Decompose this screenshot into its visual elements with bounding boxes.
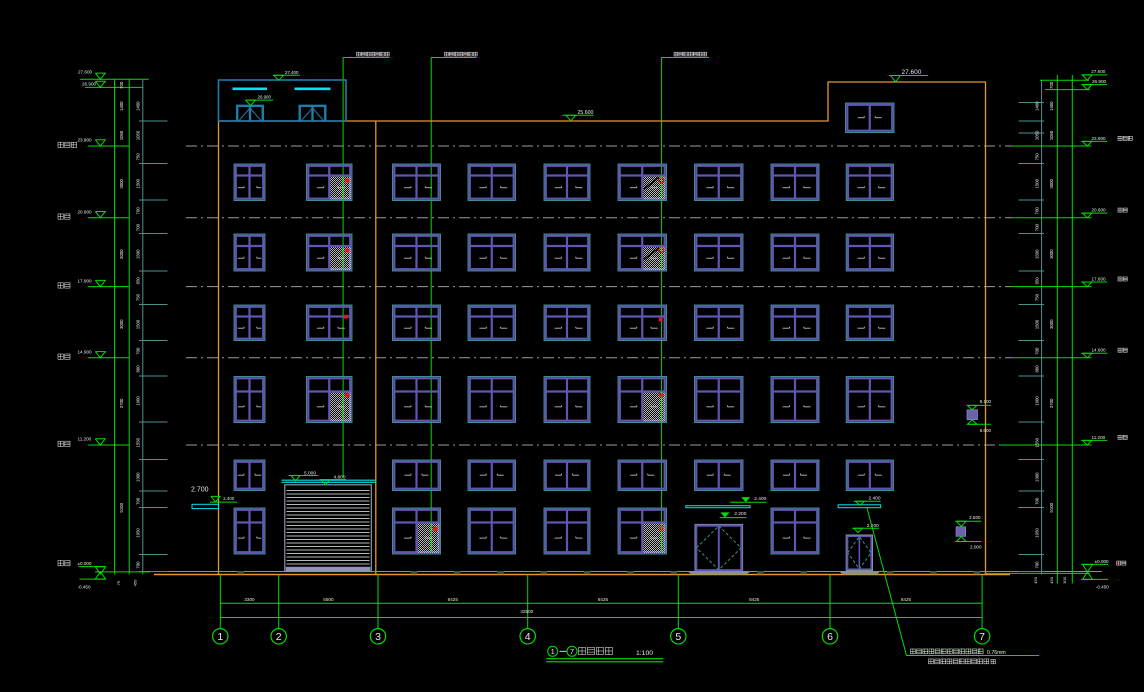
svg-text:1300: 1300 <box>1034 472 1039 482</box>
svg-text:3000: 3000 <box>119 319 124 329</box>
svg-text:1500: 1500 <box>135 249 140 259</box>
svg-text:8425: 8425 <box>901 597 912 602</box>
svg-text:1050: 1050 <box>135 130 140 140</box>
svg-text:700: 700 <box>135 497 140 505</box>
svg-text:2.400: 2.400 <box>869 496 881 502</box>
svg-text:42500: 42500 <box>520 609 533 614</box>
svg-text:5.000: 5.000 <box>304 471 316 477</box>
svg-text:2.400: 2.400 <box>754 496 766 502</box>
svg-text:2.400: 2.400 <box>223 496 235 501</box>
svg-text:4: 4 <box>525 631 531 643</box>
svg-text:1950: 1950 <box>1034 528 1039 538</box>
svg-text:2.000: 2.000 <box>970 545 982 550</box>
svg-text:1300: 1300 <box>135 472 140 482</box>
svg-text:17.900: 17.900 <box>78 278 92 283</box>
svg-text:3700: 3700 <box>119 398 124 408</box>
svg-text:3000: 3000 <box>1049 319 1054 329</box>
svg-text:2.200: 2.200 <box>867 523 879 529</box>
svg-text:75: 75 <box>116 580 121 585</box>
svg-text:23.600: 23.600 <box>1092 136 1106 141</box>
svg-text:3: 3 <box>375 631 381 643</box>
svg-text:700: 700 <box>135 561 140 569</box>
svg-text:17.600: 17.600 <box>1092 276 1106 281</box>
svg-text:26.900: 26.900 <box>82 82 96 87</box>
svg-text:3000: 3000 <box>1049 249 1054 259</box>
svg-text:11.200: 11.200 <box>1092 435 1106 440</box>
svg-text:6: 6 <box>827 631 833 643</box>
svg-text:14.900: 14.900 <box>78 350 92 355</box>
svg-text:1900: 1900 <box>1034 396 1039 406</box>
svg-text:1500: 1500 <box>1034 178 1039 188</box>
svg-text:8425: 8425 <box>749 597 760 602</box>
svg-text:1:100: 1:100 <box>636 650 653 657</box>
svg-text:8.600: 8.600 <box>980 428 992 433</box>
svg-text:1400: 1400 <box>135 101 140 111</box>
svg-text:4.800: 4.800 <box>334 474 346 480</box>
svg-text:5500: 5500 <box>323 597 334 602</box>
svg-text:2: 2 <box>276 631 282 643</box>
svg-text:700: 700 <box>1049 81 1054 89</box>
svg-text:8425: 8425 <box>448 597 459 602</box>
svg-text:700: 700 <box>1034 561 1039 569</box>
svg-text:23.900: 23.900 <box>78 138 92 143</box>
svg-text:3000: 3000 <box>119 249 124 259</box>
svg-text:3300: 3300 <box>244 597 255 602</box>
svg-text:1550: 1550 <box>135 437 140 447</box>
svg-text:1400: 1400 <box>1034 101 1039 111</box>
svg-text:700: 700 <box>135 347 140 355</box>
svg-text:7: 7 <box>570 647 574 656</box>
svg-text:750: 750 <box>135 293 140 301</box>
svg-text:20.600: 20.600 <box>1092 208 1106 213</box>
svg-text:700: 700 <box>1034 223 1039 231</box>
svg-text:800: 800 <box>135 365 140 373</box>
svg-text:650: 650 <box>135 277 140 285</box>
svg-text:1500: 1500 <box>135 319 140 329</box>
svg-text:27.600: 27.600 <box>902 69 922 76</box>
svg-text:1900: 1900 <box>135 396 140 406</box>
svg-text:700: 700 <box>1034 207 1039 215</box>
svg-text:0.76mm: 0.76mm <box>987 650 1006 656</box>
svg-text:9.100: 9.100 <box>980 399 992 404</box>
svg-text:-0.450: -0.450 <box>78 584 91 589</box>
svg-text:5100: 5100 <box>119 502 124 512</box>
svg-text:800: 800 <box>1034 365 1039 373</box>
svg-text:700: 700 <box>1034 347 1039 355</box>
svg-text:1400: 1400 <box>119 101 124 111</box>
svg-text:27.600: 27.600 <box>1091 69 1105 74</box>
svg-text:450: 450 <box>133 579 138 586</box>
svg-text:27.600: 27.600 <box>78 70 92 75</box>
svg-text:1050: 1050 <box>119 130 124 140</box>
svg-text:-0.450: -0.450 <box>1096 584 1109 589</box>
svg-text:700: 700 <box>135 207 140 215</box>
svg-text:25.600: 25.600 <box>578 110 594 116</box>
svg-text:1: 1 <box>551 647 555 656</box>
svg-text:26.900: 26.900 <box>1092 79 1106 84</box>
svg-text:11.200: 11.200 <box>78 437 92 442</box>
svg-text:±0.000: ±0.000 <box>78 561 92 566</box>
svg-text:450: 450 <box>1033 576 1038 583</box>
svg-text:750: 750 <box>1034 293 1039 301</box>
svg-text:5100: 5100 <box>1049 502 1054 512</box>
svg-text:3000: 3000 <box>119 178 124 188</box>
svg-text:27.400: 27.400 <box>285 70 299 75</box>
svg-text:8425: 8425 <box>598 597 609 602</box>
svg-text:700: 700 <box>119 81 124 89</box>
svg-text:14.600: 14.600 <box>1092 348 1106 353</box>
svg-text:750: 750 <box>135 153 140 161</box>
svg-text:5: 5 <box>675 631 681 643</box>
svg-text:1050: 1050 <box>1034 130 1039 140</box>
svg-text:1050: 1050 <box>1049 130 1054 140</box>
svg-text:700: 700 <box>135 223 140 231</box>
svg-text:450: 450 <box>1049 576 1054 583</box>
svg-text:1950: 1950 <box>135 528 140 538</box>
svg-text:7: 7 <box>979 631 985 643</box>
svg-text:3700: 3700 <box>1049 398 1054 408</box>
svg-text:2.200: 2.200 <box>734 511 746 517</box>
svg-text:700: 700 <box>1034 497 1039 505</box>
svg-text:1500: 1500 <box>135 178 140 188</box>
svg-text:±0.000: ±0.000 <box>1095 559 1109 564</box>
svg-text:1500: 1500 <box>1034 249 1039 259</box>
svg-text:1550: 1550 <box>1034 437 1039 447</box>
svg-text:2.500: 2.500 <box>969 515 981 520</box>
svg-text:3000: 3000 <box>1049 178 1054 188</box>
svg-text:750: 750 <box>1034 153 1039 161</box>
svg-text:1: 1 <box>217 631 223 643</box>
svg-text:26.900: 26.900 <box>258 95 272 100</box>
svg-text:2.700: 2.700 <box>191 486 209 493</box>
svg-text:1400: 1400 <box>1049 101 1054 111</box>
svg-text:20.900: 20.900 <box>78 209 92 214</box>
svg-text:1500: 1500 <box>1034 319 1039 329</box>
svg-text:650: 650 <box>1034 277 1039 285</box>
svg-text:300: 300 <box>1062 576 1067 583</box>
